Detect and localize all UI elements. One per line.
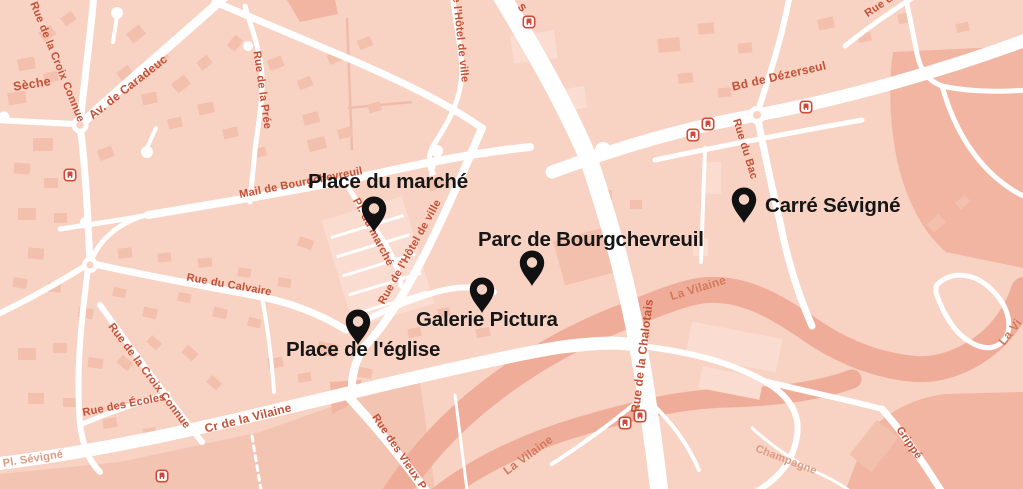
poi-label: Carré Sévigné	[765, 194, 900, 218]
map-pin[interactable]	[361, 196, 387, 233]
map[interactable]: SècheRue de la Croix ConnueAv. de Carade…	[0, 0, 1023, 489]
map-pin[interactable]	[731, 187, 757, 224]
map-pin[interactable]	[519, 250, 545, 287]
poi-label: Place du marché	[308, 170, 468, 194]
poi-label: Galerie Pictura	[416, 308, 558, 332]
poi-label: Place de l'église	[286, 338, 440, 362]
poi-label: Parc de Bourgchevreuil	[478, 228, 704, 252]
poi-layer: Place du marché Parc de Bourgchevreuil C…	[0, 0, 1023, 489]
